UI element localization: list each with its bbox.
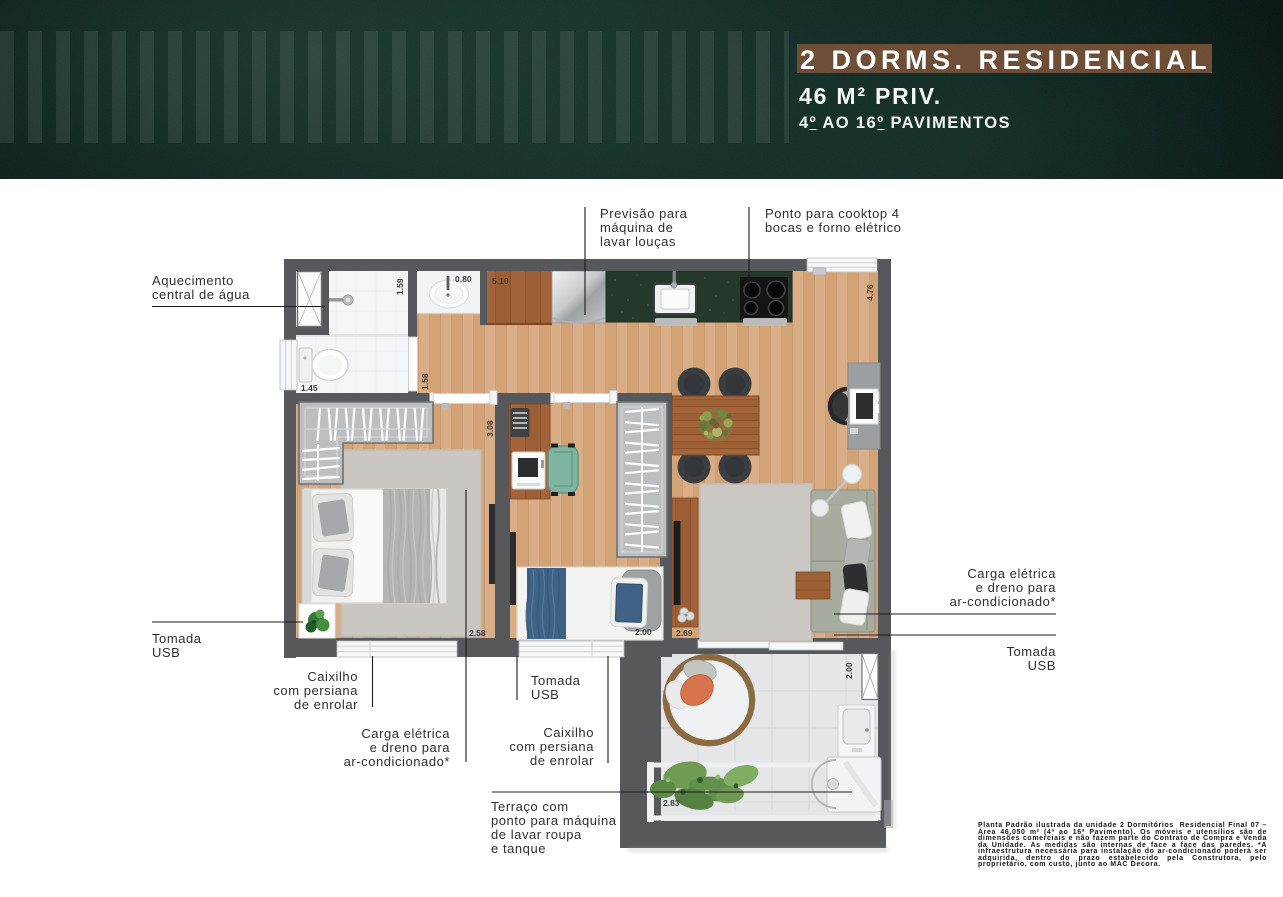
svg-text:1.58: 1.58 bbox=[420, 373, 430, 390]
svg-text:1.59: 1.59 bbox=[395, 278, 405, 295]
svg-text:5.10: 5.10 bbox=[492, 276, 509, 286]
svg-text:2.58: 2.58 bbox=[469, 628, 486, 638]
svg-text:1.45: 1.45 bbox=[301, 383, 318, 393]
svg-text:0.80: 0.80 bbox=[455, 274, 472, 284]
svg-text:2.00: 2.00 bbox=[844, 662, 854, 679]
svg-text:3.08: 3.08 bbox=[485, 420, 495, 437]
svg-text:2.69: 2.69 bbox=[676, 628, 693, 638]
svg-text:4.76: 4.76 bbox=[865, 284, 875, 301]
svg-text:2.00: 2.00 bbox=[635, 627, 652, 637]
